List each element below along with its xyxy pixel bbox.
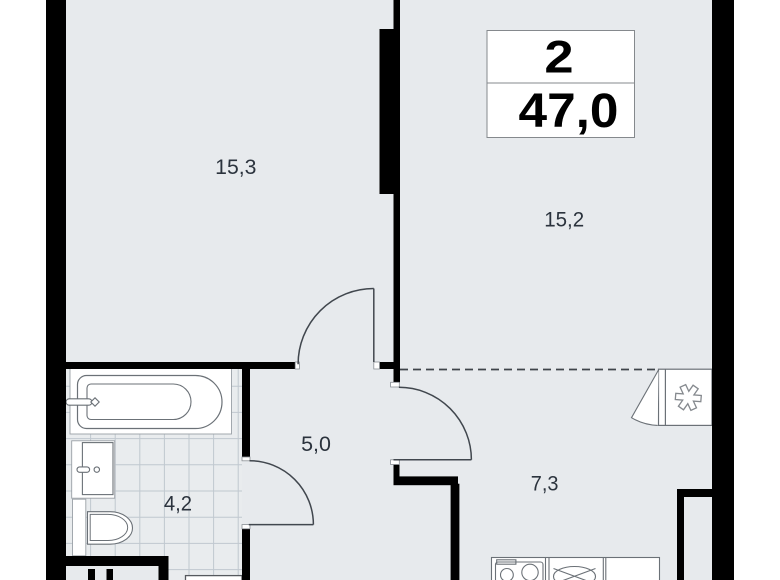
svg-text:15,2: 15,2	[544, 209, 584, 232]
svg-text:47,0: 47,0	[519, 85, 619, 138]
svg-text:2: 2	[544, 31, 573, 82]
svg-text:5,0: 5,0	[301, 433, 331, 456]
svg-text:4,2: 4,2	[164, 493, 192, 516]
svg-text:7,3: 7,3	[531, 472, 559, 495]
svg-text:15,3: 15,3	[215, 156, 256, 179]
